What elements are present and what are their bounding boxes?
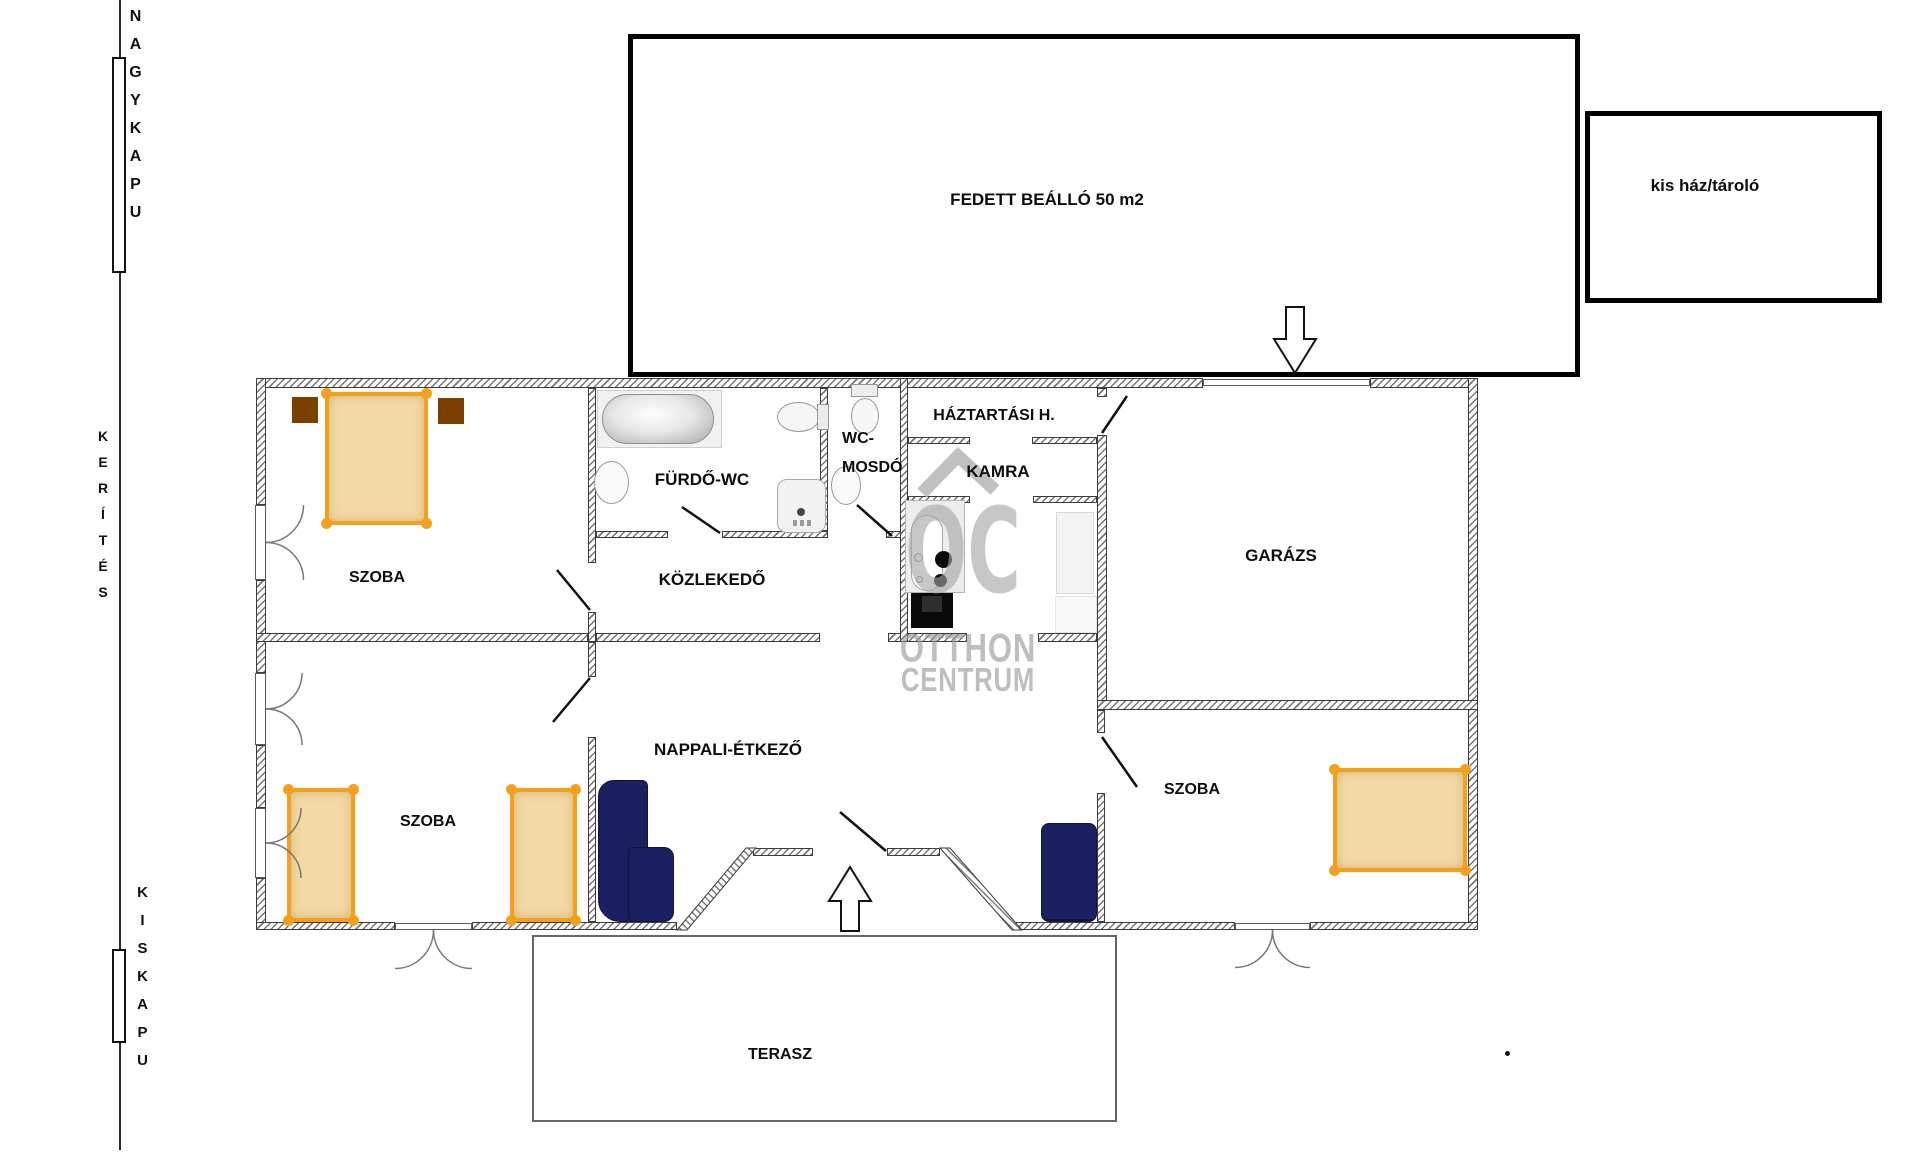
room-label-bedroom3: SZOBA	[1164, 781, 1220, 799]
room-label-wc: WC- MOSDÓ	[842, 424, 902, 482]
floor-plan: NAGYKAPU KERÍTÉS KISKAPU	[0, 0, 1920, 1155]
room-label-bathroom: FÜRDŐ-WC	[655, 470, 749, 490]
door-swing-arcs	[266, 505, 1310, 969]
room-label-garage: GARÁZS	[1245, 546, 1317, 566]
entry-arrow-up-icon	[829, 867, 871, 931]
room-label-living: NAPPALI-ÉTKEZŐ	[654, 740, 802, 760]
room-label-pantry: KAMRA	[966, 462, 1029, 482]
room-label-utility: HÁZTARTÁSI H.	[933, 407, 1054, 425]
watermark-line2: CENTRUM	[901, 661, 1035, 699]
room-label-wc-line2: MOSDÓ	[842, 453, 902, 482]
small-house-label: kis ház/tároló	[1651, 176, 1760, 196]
room-label-hallway: KÖZLEKEDŐ	[659, 570, 766, 590]
entry-arrow-down-icon	[1274, 307, 1316, 373]
room-label-bedroom2: SZOBA	[400, 813, 456, 831]
print-dot	[1505, 1051, 1510, 1056]
watermark-logo: OC	[905, 482, 1021, 620]
room-label-wc-line1: WC-	[842, 424, 902, 453]
carport-label: FEDETT BEÁLLÓ 50 m2	[950, 190, 1144, 210]
room-label-bedroom1: SZOBA	[349, 569, 405, 587]
room-label-terrace: TERASZ	[748, 1046, 812, 1064]
